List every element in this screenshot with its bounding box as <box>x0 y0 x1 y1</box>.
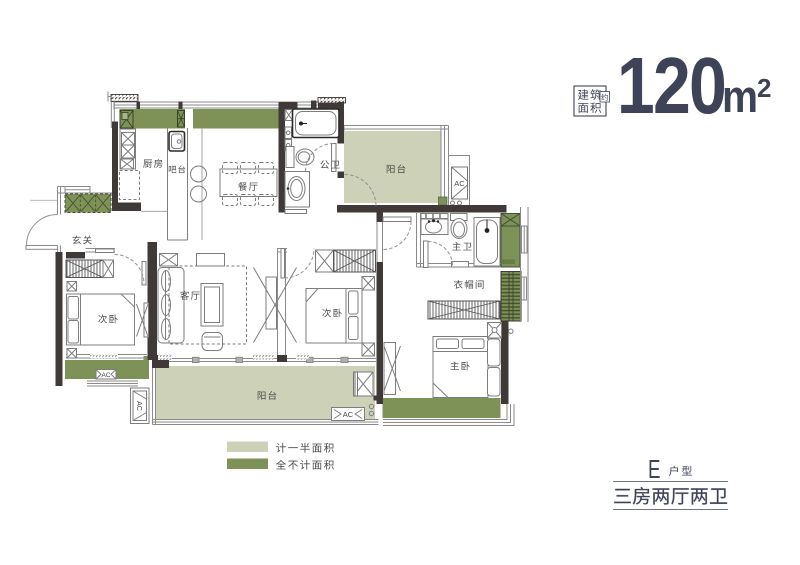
svg-text:AC: AC <box>135 401 142 411</box>
svg-text:2: 2 <box>757 73 771 103</box>
svg-text:E: E <box>648 454 660 484</box>
svg-text:AC: AC <box>454 179 465 188</box>
svg-text:AC: AC <box>343 410 354 419</box>
svg-text:120: 120 <box>617 41 725 130</box>
svg-text:AC: AC <box>101 372 110 379</box>
svg-text:m: m <box>722 72 758 122</box>
